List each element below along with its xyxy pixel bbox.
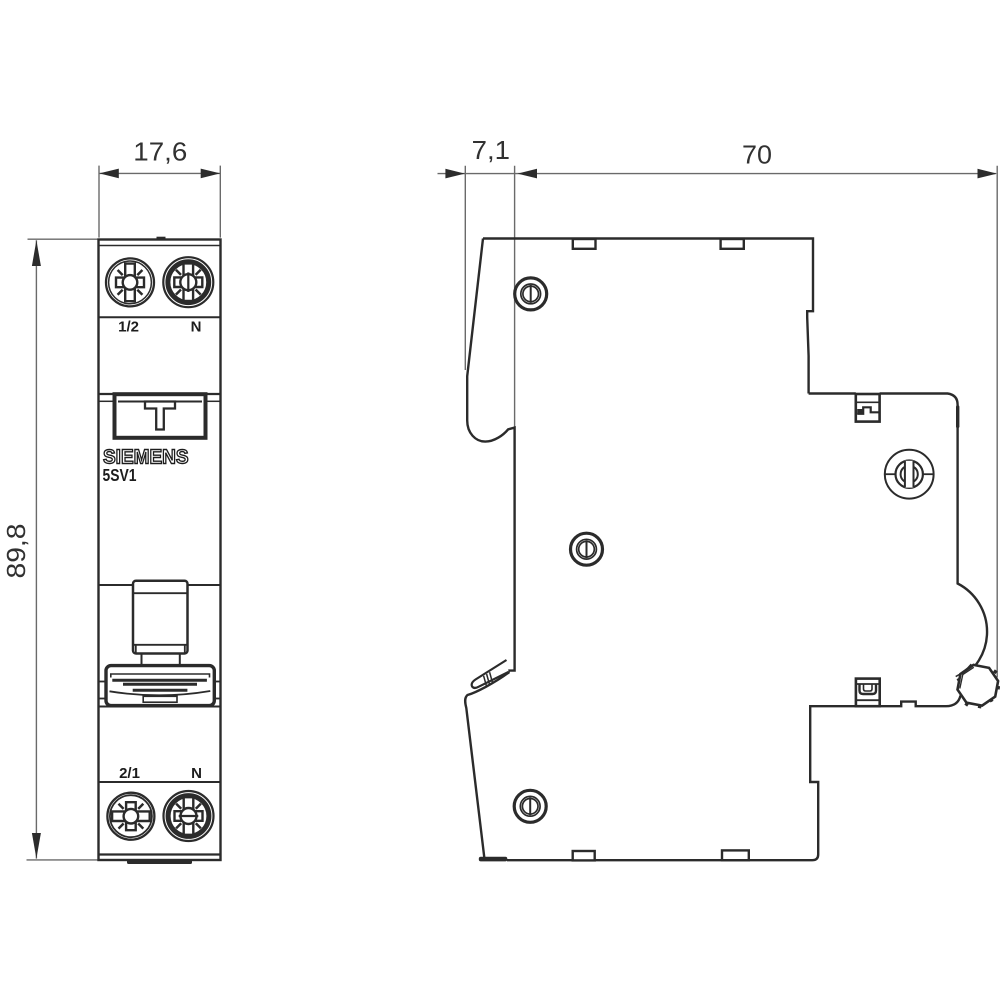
svg-text:N: N (191, 319, 202, 336)
svg-text:N: N (191, 765, 202, 782)
svg-text:2/1: 2/1 (119, 765, 140, 782)
svg-text:7,1: 7,1 (472, 135, 510, 165)
svg-text:17,6: 17,6 (133, 136, 187, 166)
svg-text:89,8: 89,8 (1, 524, 31, 579)
svg-text:70: 70 (742, 139, 772, 169)
svg-text:5SV1: 5SV1 (103, 465, 137, 485)
svg-text:1/2: 1/2 (118, 319, 139, 336)
